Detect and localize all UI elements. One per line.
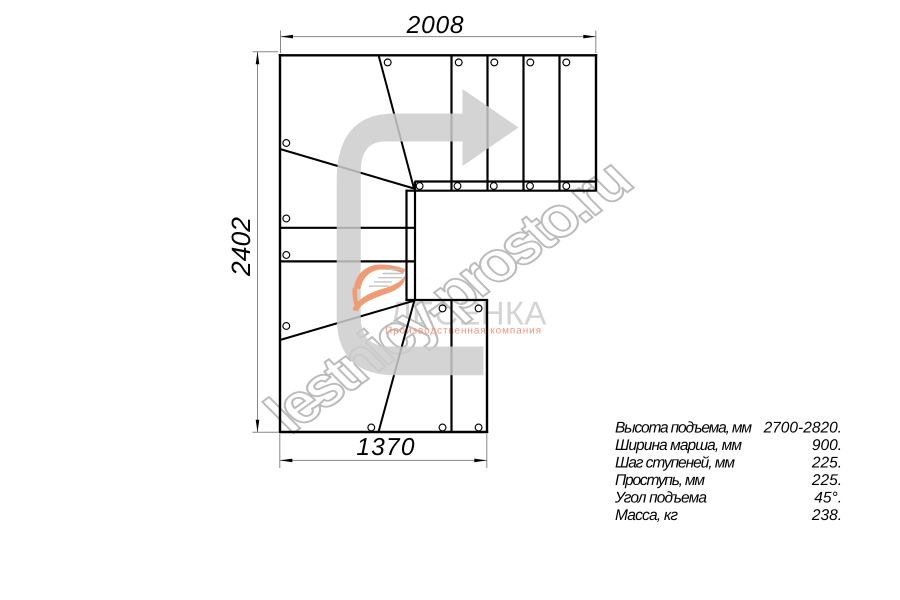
svg-text:Шаг ступеней, мм: Шаг ступеней, мм — [615, 455, 735, 472]
svg-text:45°.: 45°. — [814, 490, 842, 507]
svg-text:Производственная компания: Производственная компания — [385, 326, 542, 337]
svg-text:2402: 2402 — [226, 217, 256, 277]
svg-text:Угол подъема: Угол подъема — [614, 490, 707, 507]
svg-text:1370: 1370 — [356, 434, 415, 461]
svg-text:Проступь, мм: Проступь, мм — [615, 472, 705, 489]
svg-text:2008: 2008 — [406, 12, 465, 39]
svg-text:900.: 900. — [812, 437, 842, 454]
svg-text:238.: 238. — [811, 507, 842, 524]
svg-text:225.: 225. — [811, 455, 842, 472]
svg-text:Высота подъема, мм: Высота подъема, мм — [615, 420, 752, 437]
svg-text:2700-2820.: 2700-2820. — [763, 420, 842, 437]
svg-text:225.: 225. — [811, 472, 842, 489]
svg-text:Масса, кг: Масса, кг — [615, 507, 678, 524]
svg-text:Ширина марша, мм: Ширина марша, мм — [615, 437, 742, 454]
